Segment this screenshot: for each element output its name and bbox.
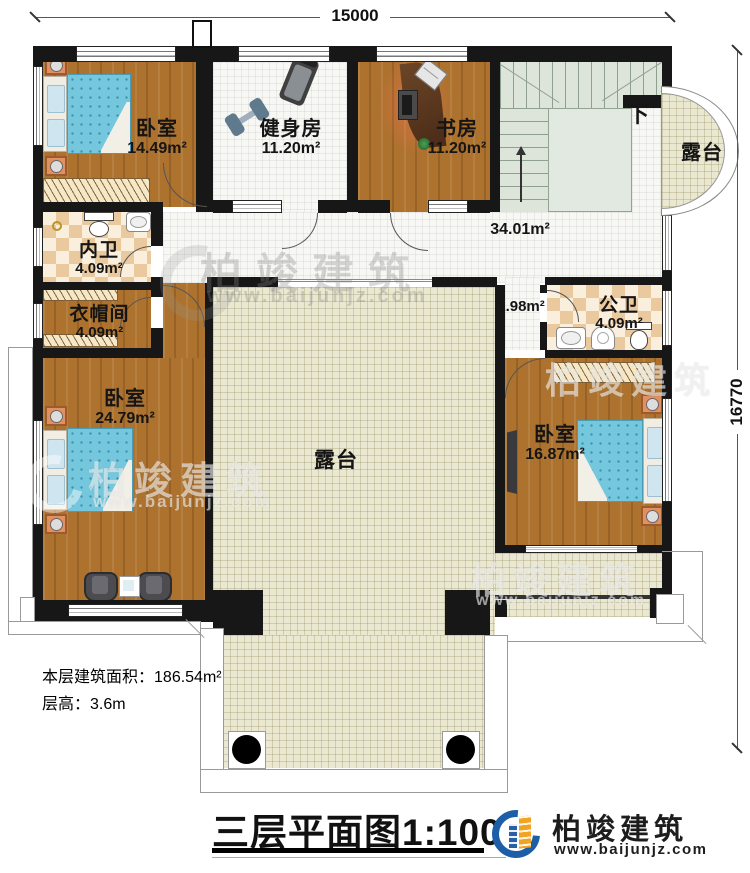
sink	[126, 212, 151, 232]
wall-bath-bedroom	[495, 350, 505, 358]
room-label-bedroom-right: 卧室 16.87m²	[500, 424, 610, 464]
armchair	[84, 572, 118, 602]
floor-height-row: 层高：3.6m	[42, 691, 222, 718]
toilet	[84, 212, 114, 238]
room-label-gym: 健身房 11.20m²	[236, 118, 346, 158]
window	[33, 303, 43, 339]
room-area: 24.79m²	[70, 410, 180, 428]
wall-hall-bath	[545, 277, 662, 285]
eave-line	[702, 551, 703, 642]
floor-area-row: 本层建筑面积：186.54m²	[42, 664, 222, 691]
room-name: 健身房	[236, 118, 346, 140]
room-area: 11.20m²	[402, 140, 512, 158]
wall-study-bottom	[358, 200, 390, 213]
eave-line	[662, 551, 703, 552]
room-name: 书房	[402, 118, 512, 140]
room-label-bedroom-top-left: 卧室 14.49m²	[102, 118, 212, 158]
floor-area-label: 本层建筑面积：	[42, 669, 154, 686]
room-label-terrace-right: 露台	[668, 142, 736, 164]
nightstand	[641, 394, 663, 414]
window	[376, 46, 468, 62]
nightstand	[45, 514, 67, 534]
room-area: 4.09m²	[60, 261, 138, 278]
nightstand	[641, 506, 663, 526]
wall-inner-bath-right	[151, 202, 163, 246]
wall-nook-bath	[540, 285, 547, 293]
wall-nook-bath	[540, 322, 547, 350]
room-label-inner-bath: 内卫 4.09m²	[60, 240, 138, 278]
wall-bedroom-tl-bottom	[33, 202, 163, 212]
brand-website: www.baijunjz.com	[554, 841, 707, 858]
column	[232, 735, 261, 764]
window	[232, 200, 282, 213]
window	[662, 215, 672, 271]
room-label-bedroom-left: 卧室 24.79m²	[70, 388, 180, 428]
room-name: 衣帽间	[52, 304, 147, 325]
title-underline-thin	[212, 857, 506, 858]
room-area: 4.09m²	[580, 316, 658, 333]
floor-height-label: 层高：	[42, 696, 90, 713]
brand-building-icon	[519, 815, 531, 848]
room-label-cloakroom: 衣帽间 4.09m²	[52, 304, 147, 342]
room-name: 卧室	[500, 424, 610, 446]
window	[428, 200, 468, 213]
room-label-nook: 1.98m²	[488, 299, 554, 316]
wall-bedroom-left-right	[205, 283, 213, 602]
pier	[445, 590, 490, 635]
eave-bottom-left-band	[8, 621, 201, 635]
window	[662, 290, 672, 346]
wall-bath-cloak	[43, 282, 151, 290]
title-text: 三层平面图	[212, 812, 402, 853]
room-name: 露台	[668, 142, 736, 164]
room-area: 34.01m²	[482, 221, 558, 239]
stair-direction-arrow	[520, 152, 522, 202]
window	[76, 46, 176, 62]
nightstand	[45, 406, 67, 426]
dimension-width: 15000	[320, 6, 390, 26]
wall-bath-bedroom	[545, 350, 662, 358]
floor-terrace-under-bedroom	[495, 553, 662, 617]
room-name: 卧室	[102, 118, 212, 140]
floor-area-value: 186.54m²	[154, 669, 222, 686]
title-scale: 1:100	[402, 812, 502, 853]
nightstand	[45, 156, 67, 176]
window	[238, 46, 330, 62]
porch-parapet-bottom	[200, 769, 508, 793]
column	[446, 735, 475, 764]
computer-monitor	[398, 90, 418, 120]
room-label-study: 书房 11.20m²	[402, 118, 512, 158]
room-area: 11.20m²	[236, 140, 346, 158]
wall-cloak-bottom	[33, 348, 163, 358]
window	[68, 604, 183, 617]
dimension-height: 16770	[727, 370, 747, 434]
room-label-terrace-center: 露台	[300, 449, 372, 473]
room-label-hallway: 34.01m²	[482, 221, 558, 239]
eave-line	[508, 641, 703, 642]
window	[662, 398, 672, 502]
wall-nook-left	[495, 285, 505, 358]
window	[525, 545, 638, 553]
wardrobe-bedroom-top-left	[43, 178, 150, 204]
brand-logo: 柏竣建筑 www.baijunjz.com	[490, 804, 740, 864]
window	[33, 227, 43, 267]
wall-gym-bottom	[213, 200, 232, 213]
wall-study-bottom	[468, 200, 490, 213]
floor-plan: 卧室 14.49m² 健身房 11.20m² 书房 11.20m² 露台 34.…	[0, 0, 750, 873]
floor-height-value: 3.6m	[90, 696, 126, 713]
eave-step-left	[20, 597, 35, 622]
towel-ring	[52, 221, 62, 231]
room-name: 卧室	[70, 388, 180, 410]
brand-building-icon	[509, 824, 517, 848]
room-area: 14.49m²	[102, 140, 212, 158]
wardrobe-bedroom-right	[553, 362, 655, 383]
armchair	[138, 572, 172, 602]
room-name: 内卫	[60, 240, 138, 261]
wall-gym-study	[347, 62, 358, 212]
title-underline-thick	[212, 848, 484, 853]
wall-terrace-top	[432, 277, 497, 287]
room-area: 4.09m²	[52, 325, 147, 342]
window	[33, 66, 43, 146]
sliding-glass-door	[278, 279, 432, 284]
floor-info: 本层建筑面积：186.54m² 层高：3.6m	[42, 664, 222, 718]
chimney	[192, 20, 212, 48]
room-area: 1.98m²	[488, 299, 554, 316]
room-name: 露台	[300, 449, 372, 473]
wall-bedroom-right-bottom	[495, 545, 525, 553]
wall-gym-bottom	[318, 200, 347, 213]
eave-step-right	[656, 594, 684, 624]
wall-corner-block	[495, 600, 507, 617]
stair-arrow-head	[516, 146, 526, 155]
side-table	[119, 576, 140, 597]
room-name: 公卫	[580, 295, 658, 316]
wall-bottom-right-thin	[495, 595, 662, 599]
room-area: 16.87m²	[500, 446, 610, 464]
room-label-public-bath: 公卫 4.09m²	[580, 295, 658, 333]
stairs-down-label: 下	[620, 103, 656, 128]
